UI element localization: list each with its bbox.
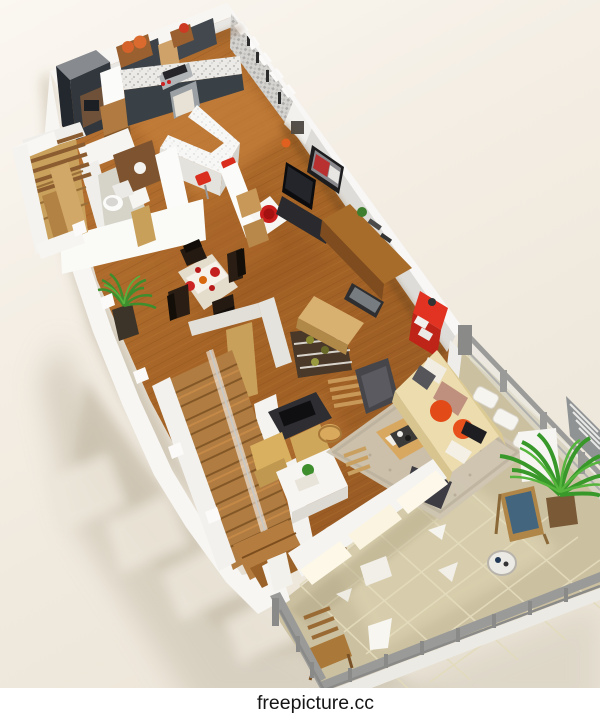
svg-text:freepicture.cc: freepicture.cc	[257, 692, 374, 714]
